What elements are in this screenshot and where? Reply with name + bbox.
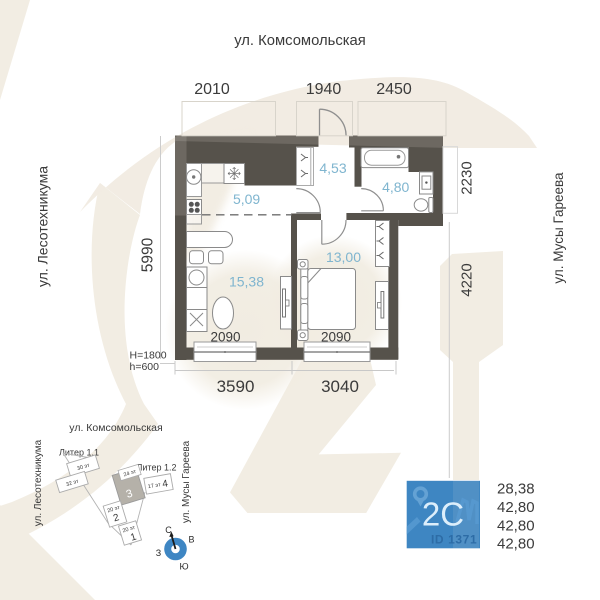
svg-text:2010: 2010 (194, 81, 230, 98)
svg-text:13,00: 13,00 (326, 249, 361, 265)
svg-text:ул. Мусы Гареева: ул. Мусы Гареева (551, 172, 566, 284)
svg-text:3040: 3040 (321, 377, 359, 396)
svg-text:28,38: 28,38 (497, 481, 535, 498)
svg-text:Литер 1.2: Литер 1.2 (137, 463, 177, 473)
svg-text:2090: 2090 (210, 329, 240, 344)
svg-text:5990: 5990 (140, 237, 157, 272)
svg-text:42,80: 42,80 (497, 518, 535, 535)
svg-text:В: В (188, 535, 194, 545)
svg-text:5,09: 5,09 (233, 191, 260, 207)
svg-text:З: З (156, 548, 161, 558)
svg-text:4220: 4220 (459, 263, 476, 296)
svg-text:4,80: 4,80 (382, 179, 409, 195)
svg-text:42,80: 42,80 (497, 499, 535, 516)
svg-text:С: С (165, 525, 172, 535)
svg-text:ID 1371: ID 1371 (431, 533, 477, 547)
svg-text:2090: 2090 (321, 329, 351, 344)
svg-text:Ю: Ю (179, 562, 188, 572)
svg-text:42,80: 42,80 (497, 536, 535, 553)
svg-text:H=1800: H=1800 (130, 350, 167, 362)
svg-text:3590: 3590 (217, 377, 255, 396)
svg-text:ул. Комсомольская: ул. Комсомольская (69, 422, 162, 434)
svg-text:ул. Лесотехникума: ул. Лесотехникума (35, 166, 51, 287)
svg-text:15,38: 15,38 (229, 273, 264, 289)
svg-text:2С: 2С (422, 496, 464, 533)
svg-text:2450: 2450 (376, 81, 412, 98)
svg-text:h=600: h=600 (130, 361, 160, 373)
svg-text:ул. Комсомольская: ул. Комсомольская (234, 33, 366, 49)
svg-text:ул. Лесотехникума: ул. Лесотехникума (33, 439, 44, 526)
svg-text:1940: 1940 (306, 81, 342, 98)
svg-text:2230: 2230 (459, 161, 476, 194)
svg-text:4,53: 4,53 (319, 160, 346, 176)
svg-text:ул. Мусы Гареева: ул. Мусы Гареева (181, 440, 192, 523)
